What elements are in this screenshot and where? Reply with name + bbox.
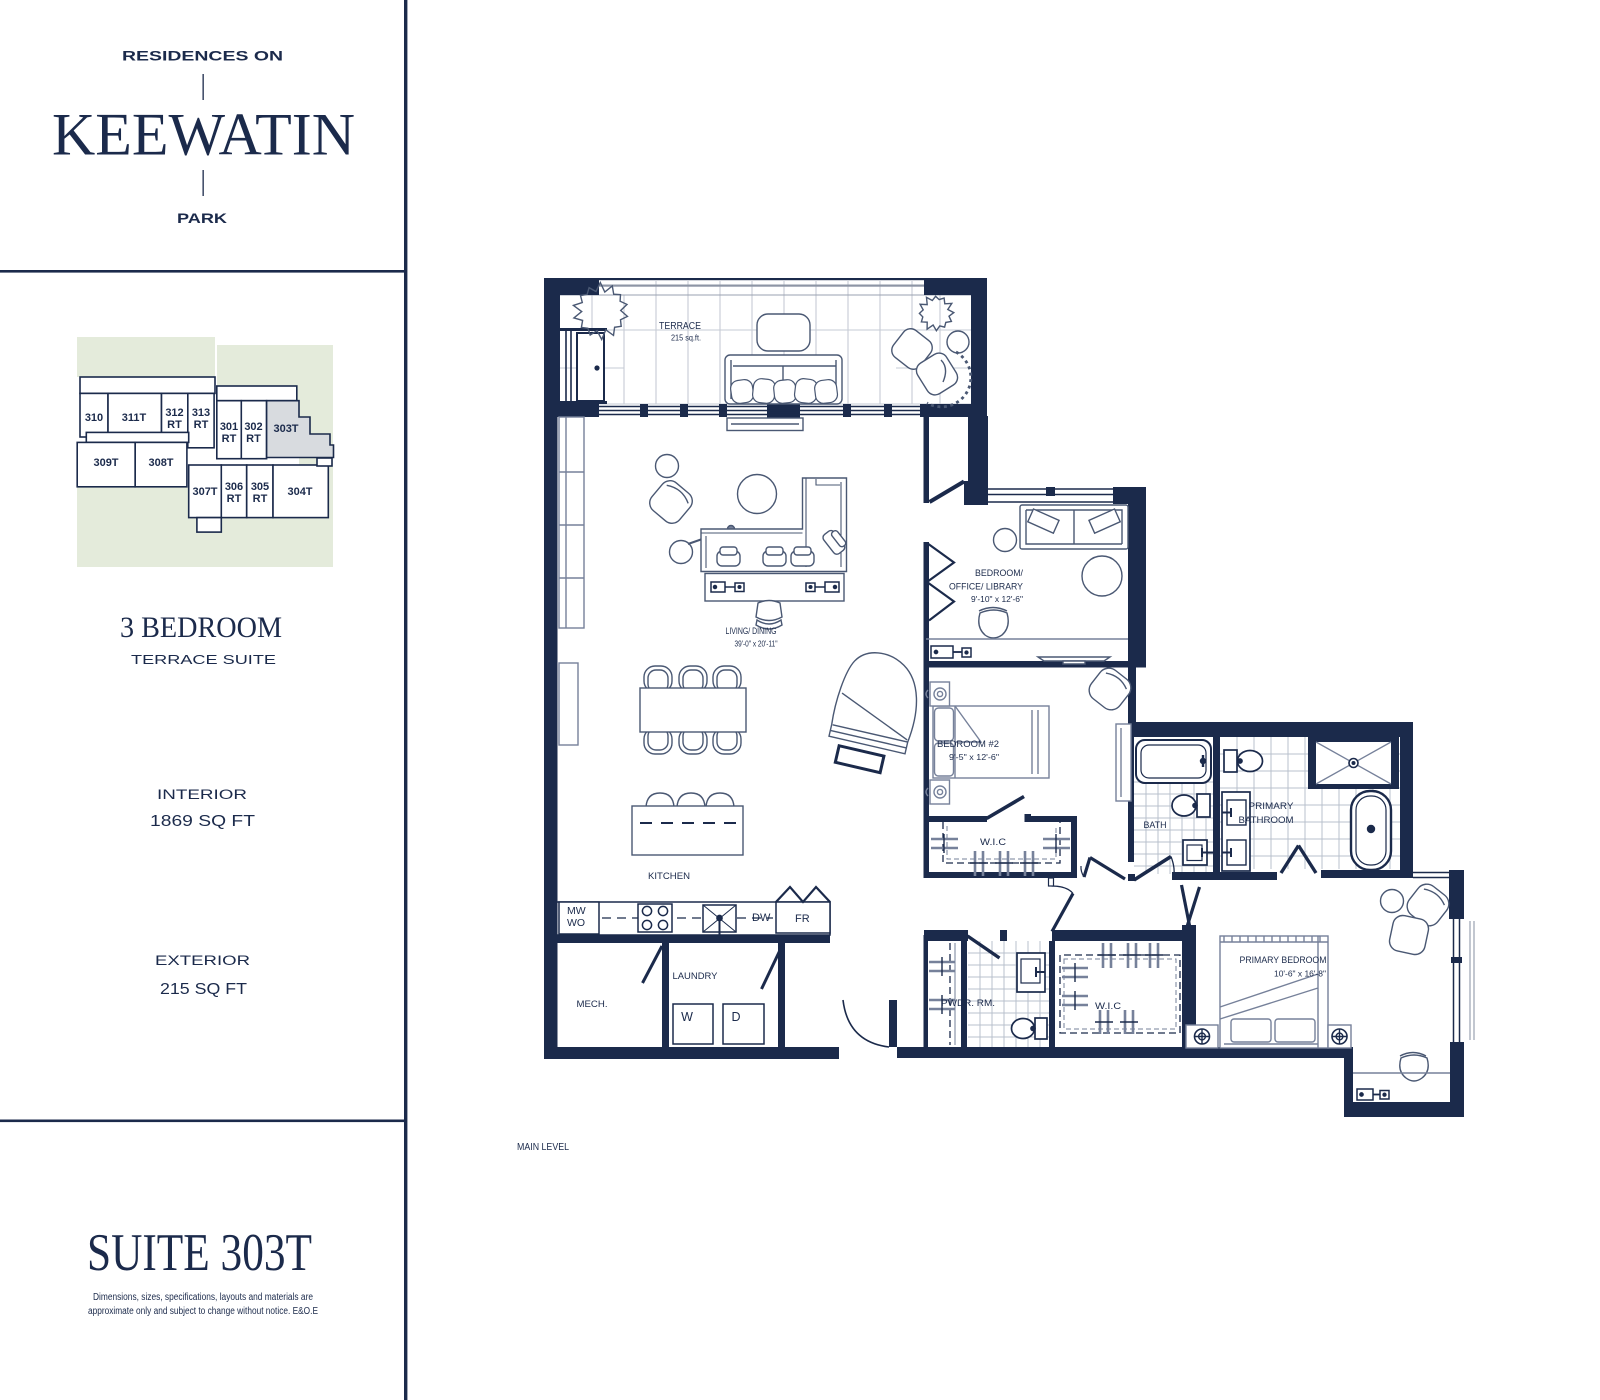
svg-text:RT: RT xyxy=(253,493,268,505)
svg-text:W: W xyxy=(681,1010,693,1024)
svg-text:303T: 303T xyxy=(273,423,298,435)
svg-text:308T: 308T xyxy=(148,457,173,469)
svg-text:306: 306 xyxy=(225,481,243,493)
svg-text:311T: 311T xyxy=(122,412,147,424)
svg-text:1869 SQ FT: 1869 SQ FT xyxy=(150,813,256,830)
svg-text:9'-10" x 12'-6": 9'-10" x 12'-6" xyxy=(971,595,1023,604)
svg-text:215 sq.ft.: 215 sq.ft. xyxy=(671,333,701,343)
svg-text:310: 310 xyxy=(85,412,103,424)
svg-text:302: 302 xyxy=(244,421,262,433)
svg-text:301: 301 xyxy=(220,421,238,433)
svg-text:RT: RT xyxy=(167,419,182,431)
svg-text:LAUNDRY: LAUNDRY xyxy=(673,971,719,982)
svg-text:WO: WO xyxy=(567,917,585,929)
svg-text:W.I.C: W.I.C xyxy=(980,837,1006,848)
svg-text:RT: RT xyxy=(194,419,209,431)
svg-text:313: 313 xyxy=(192,407,210,419)
svg-text:BEDROOM/: BEDROOM/ xyxy=(975,568,1023,579)
svg-text:PRIMARY: PRIMARY xyxy=(1249,801,1295,812)
svg-text:MECH.: MECH. xyxy=(577,999,608,1010)
svg-text:DW: DW xyxy=(752,912,771,924)
svg-text:3 BEDROOM: 3 BEDROOM xyxy=(120,611,282,644)
svg-text:PARK: PARK xyxy=(177,210,227,226)
svg-text:OFFICE/ LIBRARY: OFFICE/ LIBRARY xyxy=(949,582,1024,593)
svg-text:RT: RT xyxy=(222,433,237,445)
svg-text:BEDROOM #2: BEDROOM #2 xyxy=(937,739,999,750)
svg-text:PWDR. RM.: PWDR. RM. xyxy=(941,998,995,1009)
svg-text:W.I.C: W.I.C xyxy=(1095,1001,1121,1012)
svg-text:MW: MW xyxy=(567,905,586,917)
svg-text:307T: 307T xyxy=(192,486,217,498)
svg-text:10'-6" x 16'-8": 10'-6" x 16'-8" xyxy=(1274,970,1326,979)
svg-text:EXTERIOR: EXTERIOR xyxy=(155,953,250,968)
svg-text:9'-5" x 12'-6": 9'-5" x 12'-6" xyxy=(949,753,999,762)
svg-text:TERRACE SUITE: TERRACE SUITE xyxy=(131,652,276,667)
svg-text:Dimensions, sizes, specificati: Dimensions, sizes, specifications, layou… xyxy=(93,1292,313,1303)
svg-text:approximate only and subject t: approximate only and subject to change w… xyxy=(88,1306,318,1317)
svg-text:INTERIOR: INTERIOR xyxy=(157,787,247,802)
svg-text:309T: 309T xyxy=(93,457,118,469)
svg-text:MAIN LEVEL: MAIN LEVEL xyxy=(517,1142,569,1153)
svg-text:BATH: BATH xyxy=(1144,820,1167,831)
svg-text:RT: RT xyxy=(227,493,242,505)
svg-text:215 SQ FT: 215 SQ FT xyxy=(160,981,248,998)
svg-text:KEEWATIN: KEEWATIN xyxy=(52,102,355,168)
svg-text:312: 312 xyxy=(165,407,183,419)
svg-text:SUITE 303T: SUITE 303T xyxy=(87,1224,312,1282)
svg-text:FR: FR xyxy=(795,913,810,925)
svg-text:LIVING/ DINING: LIVING/ DINING xyxy=(726,626,777,637)
svg-text:305: 305 xyxy=(251,481,269,493)
svg-text:PRIMARY BEDROOM: PRIMARY BEDROOM xyxy=(1240,955,1327,966)
svg-text:KITCHEN: KITCHEN xyxy=(648,871,690,882)
svg-text:RT: RT xyxy=(246,433,261,445)
svg-text:39'-0" x 20'-11": 39'-0" x 20'-11" xyxy=(735,640,778,649)
svg-text:BATHROOM: BATHROOM xyxy=(1239,815,1294,826)
svg-text:RESIDENCES ON: RESIDENCES ON xyxy=(122,49,283,64)
svg-text:TERRACE: TERRACE xyxy=(659,321,701,332)
svg-text:304T: 304T xyxy=(287,486,312,498)
svg-text:D: D xyxy=(731,1010,740,1024)
